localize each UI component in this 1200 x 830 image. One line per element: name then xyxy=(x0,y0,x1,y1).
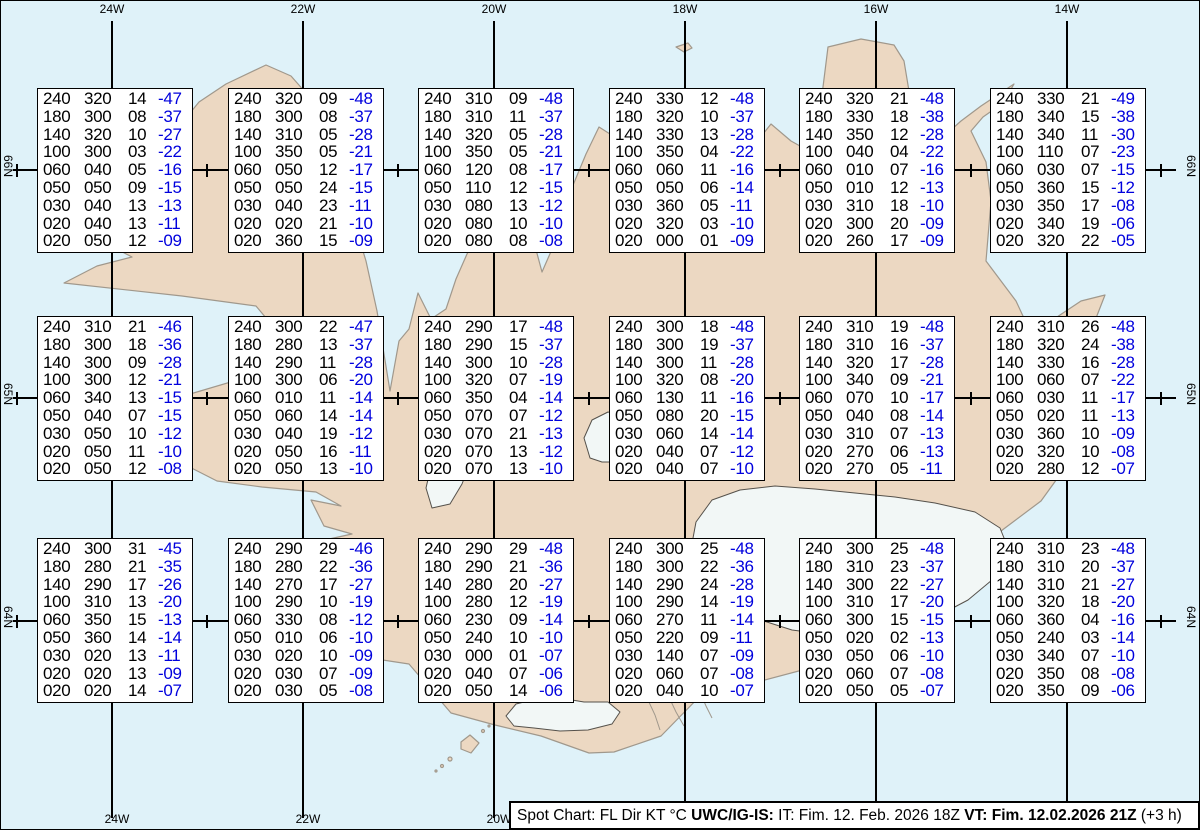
fl-value: 100 xyxy=(43,593,84,611)
fl-value: 140 xyxy=(805,576,846,594)
fl-value: 240 xyxy=(996,90,1037,108)
fl-value: 060 xyxy=(424,389,465,407)
spot-row-fl020: 02034019-06 xyxy=(996,215,1145,233)
temp-value: -14 xyxy=(730,611,766,629)
wind-speed-value: 12 xyxy=(1081,460,1111,478)
spot-row-fl050: 05005024-15 xyxy=(234,179,383,197)
temp-value: -10 xyxy=(539,215,575,233)
wind-dir-value: 270 xyxy=(846,460,890,478)
spot-box-r1c4: 24033012-4818032010-3714033013-281003500… xyxy=(609,88,765,253)
wind-speed-value: 16 xyxy=(890,336,920,354)
spot-row-fl030: 03014007-09 xyxy=(615,647,764,665)
temp-value: -11 xyxy=(349,443,385,461)
spot-box-r1c5: 24032021-4818033018-3814035012-281000400… xyxy=(799,88,955,253)
fl-value: 030 xyxy=(234,425,275,443)
spot-row-fl180: 18029021-36 xyxy=(424,558,573,576)
fl-value: 050 xyxy=(996,629,1037,647)
spot-row-fl050: 05002002-13 xyxy=(805,629,954,647)
fl-value: 030 xyxy=(424,425,465,443)
wind-dir-value: 070 xyxy=(465,443,509,461)
fl-value: 020 xyxy=(234,460,275,478)
wind-speed-value: 22 xyxy=(890,576,920,594)
temp-value: -28 xyxy=(920,354,956,372)
spot-box-r3c1: 24030031-4518028021-3514029017-261003101… xyxy=(37,538,193,703)
fl-value: 140 xyxy=(234,354,275,372)
temp-value: -14 xyxy=(539,611,575,629)
spot-row-fl030: 03004023-11 xyxy=(234,197,383,215)
wind-dir-value: 270 xyxy=(846,443,890,461)
wind-speed-value: 15 xyxy=(509,336,539,354)
wind-dir-value: 300 xyxy=(656,354,700,372)
spot-row-fl100: 10032008-20 xyxy=(615,371,764,389)
wind-speed-value: 10 xyxy=(509,629,539,647)
wind-dir-value: 300 xyxy=(84,540,128,558)
temp-value: -46 xyxy=(158,318,194,336)
wind-speed-value: 25 xyxy=(890,540,920,558)
wind-dir-value: 070 xyxy=(465,460,509,478)
wind-dir-value: 050 xyxy=(84,425,128,443)
temp-value: -19 xyxy=(730,593,766,611)
fl-value: 050 xyxy=(424,629,465,647)
wind-dir-value: 050 xyxy=(275,443,319,461)
temp-value: -19 xyxy=(539,371,575,389)
fl-value: 030 xyxy=(996,647,1037,665)
temp-value: -14 xyxy=(730,179,766,197)
fl-value: 180 xyxy=(615,108,656,126)
fl-value: 100 xyxy=(996,143,1037,161)
fl-value: 050 xyxy=(234,407,275,425)
spot-row-fl050: 05004008-14 xyxy=(805,407,954,425)
wind-speed-value: 15 xyxy=(890,611,920,629)
wind-dir-value: 010 xyxy=(846,179,890,197)
fl-value: 060 xyxy=(424,161,465,179)
temp-value: -08 xyxy=(158,460,194,478)
wind-dir-value: 060 xyxy=(656,425,700,443)
wind-speed-value: 19 xyxy=(700,336,730,354)
spot-row-fl180: 18031011-37 xyxy=(424,108,573,126)
wind-speed-value: 07 xyxy=(1081,371,1111,389)
fl-value: 180 xyxy=(805,336,846,354)
spot-row-fl140: 14030011-28 xyxy=(615,354,764,372)
fl-value: 140 xyxy=(43,126,84,144)
wind-speed-value: 23 xyxy=(319,197,349,215)
wind-dir-value: 050 xyxy=(275,161,319,179)
wind-speed-value: 12 xyxy=(890,126,920,144)
spot-row-fl020: 02002014-07 xyxy=(43,682,192,700)
temp-value: -20 xyxy=(349,371,385,389)
fl-value: 140 xyxy=(996,576,1037,594)
wind-speed-value: 21 xyxy=(890,90,920,108)
spot-row-fl240: 24033012-48 xyxy=(615,90,764,108)
wind-dir-value: 350 xyxy=(1037,682,1081,700)
fl-value: 020 xyxy=(43,460,84,478)
temp-value: -19 xyxy=(349,593,385,611)
spot-row-fl100: 10004004-22 xyxy=(805,143,954,161)
temp-value: -08 xyxy=(1111,443,1147,461)
wind-speed-value: 18 xyxy=(890,197,920,215)
fl-value: 180 xyxy=(234,108,275,126)
spot-row-fl100: 10030006-20 xyxy=(234,371,383,389)
temp-value: -37 xyxy=(349,336,385,354)
wind-speed-value: 11 xyxy=(700,161,730,179)
wind-speed-value: 09 xyxy=(700,629,730,647)
wind-speed-value: 13 xyxy=(128,215,158,233)
spot-row-fl050: 05024003-14 xyxy=(996,629,1145,647)
wind-speed-value: 05 xyxy=(890,682,920,700)
fl-value: 050 xyxy=(615,629,656,647)
spot-row-fl100: 10029014-19 xyxy=(615,593,764,611)
fl-value: 180 xyxy=(43,336,84,354)
temp-value: -11 xyxy=(158,215,194,233)
wind-dir-value: 360 xyxy=(656,197,700,215)
wind-speed-value: 19 xyxy=(890,318,920,336)
fl-value: 030 xyxy=(615,197,656,215)
spot-row-fl060: 06033008-12 xyxy=(234,611,383,629)
spot-row-fl240: 24030018-48 xyxy=(615,318,764,336)
wind-dir-value: 350 xyxy=(465,389,509,407)
fl-value: 060 xyxy=(43,389,84,407)
temp-value: -14 xyxy=(730,425,766,443)
wind-dir-value: 300 xyxy=(656,318,700,336)
temp-value: -36 xyxy=(158,336,194,354)
wind-dir-value: 020 xyxy=(84,665,128,683)
spot-row-fl050: 05007007-12 xyxy=(424,407,573,425)
wind-speed-value: 10 xyxy=(128,425,158,443)
wind-speed-value: 12 xyxy=(319,161,349,179)
wind-speed-value: 05 xyxy=(890,460,920,478)
temp-value: -10 xyxy=(539,460,575,478)
fl-value: 180 xyxy=(424,336,465,354)
temp-value: -08 xyxy=(1111,665,1147,683)
temp-value: -14 xyxy=(1111,629,1147,647)
wind-dir-value: 040 xyxy=(84,215,128,233)
fl-value: 020 xyxy=(424,443,465,461)
temp-value: -48 xyxy=(539,540,575,558)
temp-value: -09 xyxy=(730,647,766,665)
spot-row-fl020: 02007013-10 xyxy=(424,460,573,478)
wind-speed-value: 07 xyxy=(509,665,539,683)
wind-dir-value: 300 xyxy=(846,576,890,594)
wind-speed-value: 07 xyxy=(1081,647,1111,665)
wind-speed-value: 15 xyxy=(319,232,349,250)
wind-speed-value: 13 xyxy=(128,197,158,215)
wind-speed-value: 18 xyxy=(1081,593,1111,611)
fl-value: 240 xyxy=(234,90,275,108)
temp-value: -12 xyxy=(539,407,575,425)
wind-speed-value: 08 xyxy=(128,108,158,126)
fl-value: 140 xyxy=(615,576,656,594)
spot-row-fl020: 02035009-06 xyxy=(996,682,1145,700)
wind-dir-value: 350 xyxy=(1037,197,1081,215)
wind-speed-value: 07 xyxy=(890,161,920,179)
wind-dir-value: 300 xyxy=(275,108,319,126)
wind-dir-value: 300 xyxy=(656,558,700,576)
wind-speed-value: 31 xyxy=(128,540,158,558)
wind-speed-value: 09 xyxy=(890,371,920,389)
fl-value: 140 xyxy=(996,126,1037,144)
spot-row-fl030: 03034007-10 xyxy=(996,647,1145,665)
wind-speed-value: 14 xyxy=(700,425,730,443)
wind-dir-value: 320 xyxy=(465,371,509,389)
spot-row-fl240: 24029029-46 xyxy=(234,540,383,558)
spot-row-fl140: 14031005-28 xyxy=(234,126,383,144)
fl-value: 030 xyxy=(996,425,1037,443)
fl-value: 180 xyxy=(805,558,846,576)
fl-value: 060 xyxy=(234,389,275,407)
temp-value: -20 xyxy=(920,593,956,611)
wind-speed-value: 12 xyxy=(509,179,539,197)
fl-value: 030 xyxy=(615,647,656,665)
spot-row-fl020: 02004007-10 xyxy=(615,460,764,478)
wind-dir-value: 000 xyxy=(656,232,700,250)
wind-dir-value: 350 xyxy=(465,143,509,161)
spot-box-r3c3: 24029029-4818029021-3614028020-271002801… xyxy=(418,538,574,703)
wind-dir-value: 020 xyxy=(1037,407,1081,425)
spot-row-fl020: 02003007-09 xyxy=(234,665,383,683)
fl-value: 020 xyxy=(996,232,1037,250)
temp-value: -27 xyxy=(1111,576,1147,594)
wind-speed-value: 10 xyxy=(1081,425,1111,443)
fl-value: 050 xyxy=(805,629,846,647)
temp-value: -06 xyxy=(1111,682,1147,700)
fl-value: 020 xyxy=(615,215,656,233)
wind-speed-value: 20 xyxy=(890,215,920,233)
temp-value: -28 xyxy=(158,354,194,372)
fl-value: 240 xyxy=(996,540,1037,558)
temp-value: -37 xyxy=(920,336,956,354)
temp-value: -37 xyxy=(730,108,766,126)
wind-dir-value: 050 xyxy=(846,647,890,665)
wind-speed-value: 17 xyxy=(890,593,920,611)
fl-value: 060 xyxy=(615,161,656,179)
wind-dir-value: 040 xyxy=(465,665,509,683)
wind-dir-value: 050 xyxy=(275,179,319,197)
spot-row-fl140: 14032017-28 xyxy=(805,354,954,372)
spot-row-fl240: 24032014-47 xyxy=(43,90,192,108)
wind-dir-value: 290 xyxy=(275,593,319,611)
temp-value: -07 xyxy=(920,682,956,700)
wind-speed-value: 07 xyxy=(509,407,539,425)
wind-speed-value: 21 xyxy=(509,558,539,576)
fl-value: 180 xyxy=(996,558,1037,576)
spot-box-r1c2: 24032009-4818030008-3714031005-281003500… xyxy=(228,88,384,253)
wind-dir-value: 050 xyxy=(84,179,128,197)
fl-value: 020 xyxy=(43,443,84,461)
temp-value: -13 xyxy=(920,443,956,461)
spot-row-fl140: 14030022-27 xyxy=(805,576,954,594)
spot-row-fl140: 14030009-28 xyxy=(43,354,192,372)
spot-row-fl030: 03004019-12 xyxy=(234,425,383,443)
wind-speed-value: 05 xyxy=(319,126,349,144)
wind-dir-value: 300 xyxy=(275,371,319,389)
spot-row-fl050: 05036015-12 xyxy=(996,179,1145,197)
wind-speed-value: 09 xyxy=(1081,682,1111,700)
fl-value: 020 xyxy=(996,460,1037,478)
fl-value: 020 xyxy=(424,215,465,233)
wind-dir-value: 110 xyxy=(1037,143,1081,161)
wind-dir-value: 270 xyxy=(656,611,700,629)
fl-value: 060 xyxy=(805,389,846,407)
fl-value: 030 xyxy=(234,647,275,665)
wind-speed-value: 22 xyxy=(319,558,349,576)
wind-speed-value: 12 xyxy=(700,90,730,108)
fl-value: 020 xyxy=(805,460,846,478)
footer-segment-1: UWC/IG-IS: xyxy=(691,807,774,825)
temp-value: -28 xyxy=(539,126,575,144)
wind-speed-value: 07 xyxy=(890,665,920,683)
wind-dir-value: 040 xyxy=(656,682,700,700)
temp-value: -06 xyxy=(1111,215,1147,233)
wind-speed-value: 07 xyxy=(700,443,730,461)
wind-dir-value: 300 xyxy=(846,215,890,233)
spot-row-fl020: 02030020-09 xyxy=(805,215,954,233)
wind-dir-value: 030 xyxy=(1037,161,1081,179)
spot-row-fl060: 06003011-17 xyxy=(996,389,1145,407)
temp-value: -14 xyxy=(920,407,956,425)
wind-dir-value: 000 xyxy=(465,647,509,665)
fl-value: 020 xyxy=(615,460,656,478)
temp-value: -12 xyxy=(730,443,766,461)
wind-speed-value: 07 xyxy=(1081,161,1111,179)
fl-value: 020 xyxy=(996,682,1037,700)
temp-value: -09 xyxy=(158,232,194,250)
temp-value: -15 xyxy=(158,179,194,197)
wind-dir-value: 280 xyxy=(465,593,509,611)
spot-row-fl050: 05011012-15 xyxy=(424,179,573,197)
wind-dir-value: 070 xyxy=(465,425,509,443)
fl-value: 180 xyxy=(996,336,1037,354)
wind-speed-value: 12 xyxy=(128,371,158,389)
wind-dir-value: 350 xyxy=(846,126,890,144)
fl-value: 020 xyxy=(234,682,275,700)
wind-speed-value: 13 xyxy=(509,443,539,461)
spot-row-fl020: 02032003-10 xyxy=(615,215,764,233)
spot-row-fl050: 05022009-11 xyxy=(615,629,764,647)
wind-dir-value: 310 xyxy=(846,197,890,215)
spot-row-fl100: 10029010-19 xyxy=(234,593,383,611)
wind-dir-value: 080 xyxy=(465,232,509,250)
wind-speed-value: 07 xyxy=(890,425,920,443)
wind-dir-value: 040 xyxy=(275,425,319,443)
fl-value: 020 xyxy=(424,460,465,478)
fl-value: 060 xyxy=(424,611,465,629)
wind-dir-value: 050 xyxy=(84,460,128,478)
footer-segment-0: Spot Chart: FL Dir KT °C xyxy=(517,807,691,825)
fl-value: 030 xyxy=(43,425,84,443)
fl-value: 020 xyxy=(424,232,465,250)
temp-value: -13 xyxy=(920,179,956,197)
wind-dir-value: 280 xyxy=(275,558,319,576)
fl-value: 240 xyxy=(234,318,275,336)
spot-row-fl020: 02028012-07 xyxy=(996,460,1145,478)
wind-speed-value: 01 xyxy=(700,232,730,250)
spot-row-fl030: 03036010-09 xyxy=(996,425,1145,443)
temp-value: -27 xyxy=(158,126,194,144)
wind-speed-value: 14 xyxy=(700,593,730,611)
fl-value: 180 xyxy=(996,108,1037,126)
wind-speed-value: 13 xyxy=(128,647,158,665)
temp-value: -20 xyxy=(158,593,194,611)
wind-speed-value: 13 xyxy=(509,460,539,478)
wind-dir-value: 310 xyxy=(84,593,128,611)
wind-dir-value: 320 xyxy=(1037,232,1081,250)
wind-dir-value: 300 xyxy=(656,336,700,354)
wind-speed-value: 17 xyxy=(890,354,920,372)
wind-speed-value: 01 xyxy=(509,647,539,665)
fl-value: 240 xyxy=(424,540,465,558)
wind-dir-value: 050 xyxy=(84,443,128,461)
wind-dir-value: 320 xyxy=(1037,593,1081,611)
wind-speed-value: 21 xyxy=(1081,90,1111,108)
spot-row-fl050: 05005006-14 xyxy=(615,179,764,197)
spot-row-fl240: 24031023-48 xyxy=(996,540,1145,558)
temp-value: -13 xyxy=(158,197,194,215)
wind-speed-value: 11 xyxy=(700,354,730,372)
wind-speed-value: 07 xyxy=(128,407,158,425)
spot-row-fl020: 02008010-10 xyxy=(424,215,573,233)
spot-row-fl180: 18032024-38 xyxy=(996,336,1145,354)
spot-row-fl020: 02006007-08 xyxy=(805,665,954,683)
spot-row-fl240: 24030022-47 xyxy=(234,318,383,336)
wind-dir-value: 040 xyxy=(846,143,890,161)
wind-speed-value: 11 xyxy=(509,108,539,126)
fl-value: 100 xyxy=(996,593,1037,611)
fl-value: 020 xyxy=(805,682,846,700)
fl-value: 020 xyxy=(805,443,846,461)
temp-value: -21 xyxy=(920,371,956,389)
temp-value: -21 xyxy=(349,143,385,161)
spot-row-fl060: 06001007-16 xyxy=(805,161,954,179)
temp-value: -12 xyxy=(349,611,385,629)
temp-value: -35 xyxy=(158,558,194,576)
footer-segment-3: VT: Fim. 12.02.2026 21Z xyxy=(964,807,1136,825)
spot-row-fl180: 18033018-38 xyxy=(805,108,954,126)
spot-row-fl050: 05006014-14 xyxy=(234,407,383,425)
spot-row-fl140: 14032010-27 xyxy=(43,126,192,144)
spot-row-fl030: 03035017-08 xyxy=(996,197,1145,215)
wind-dir-value: 330 xyxy=(1037,354,1081,372)
spot-row-fl140: 14031021-27 xyxy=(996,576,1145,594)
fl-value: 180 xyxy=(424,108,465,126)
wind-speed-value: 13 xyxy=(319,460,349,478)
fl-value: 240 xyxy=(424,90,465,108)
spot-row-fl100: 10028012-19 xyxy=(424,593,573,611)
wind-speed-value: 19 xyxy=(1081,215,1111,233)
wind-speed-value: 29 xyxy=(509,540,539,558)
fl-value: 140 xyxy=(234,576,275,594)
spot-row-fl100: 10035004-22 xyxy=(615,143,764,161)
spot-row-fl030: 03005010-12 xyxy=(43,425,192,443)
wind-speed-value: 10 xyxy=(128,126,158,144)
wind-dir-value: 120 xyxy=(465,161,509,179)
wind-dir-value: 070 xyxy=(465,407,509,425)
fl-value: 020 xyxy=(996,443,1037,461)
wind-dir-value: 240 xyxy=(465,629,509,647)
temp-value: -10 xyxy=(539,629,575,647)
temp-value: -28 xyxy=(920,126,956,144)
temp-value: -15 xyxy=(920,611,956,629)
fl-value: 020 xyxy=(43,215,84,233)
spot-row-fl140: 14033016-28 xyxy=(996,354,1145,372)
wind-speed-value: 09 xyxy=(128,354,158,372)
wind-speed-value: 23 xyxy=(1081,540,1111,558)
wind-dir-value: 020 xyxy=(275,215,319,233)
fl-value: 030 xyxy=(805,425,846,443)
wind-speed-value: 04 xyxy=(700,143,730,161)
temp-value: -28 xyxy=(1111,354,1147,372)
temp-value: -48 xyxy=(1111,540,1147,558)
temp-value: -12 xyxy=(349,425,385,443)
